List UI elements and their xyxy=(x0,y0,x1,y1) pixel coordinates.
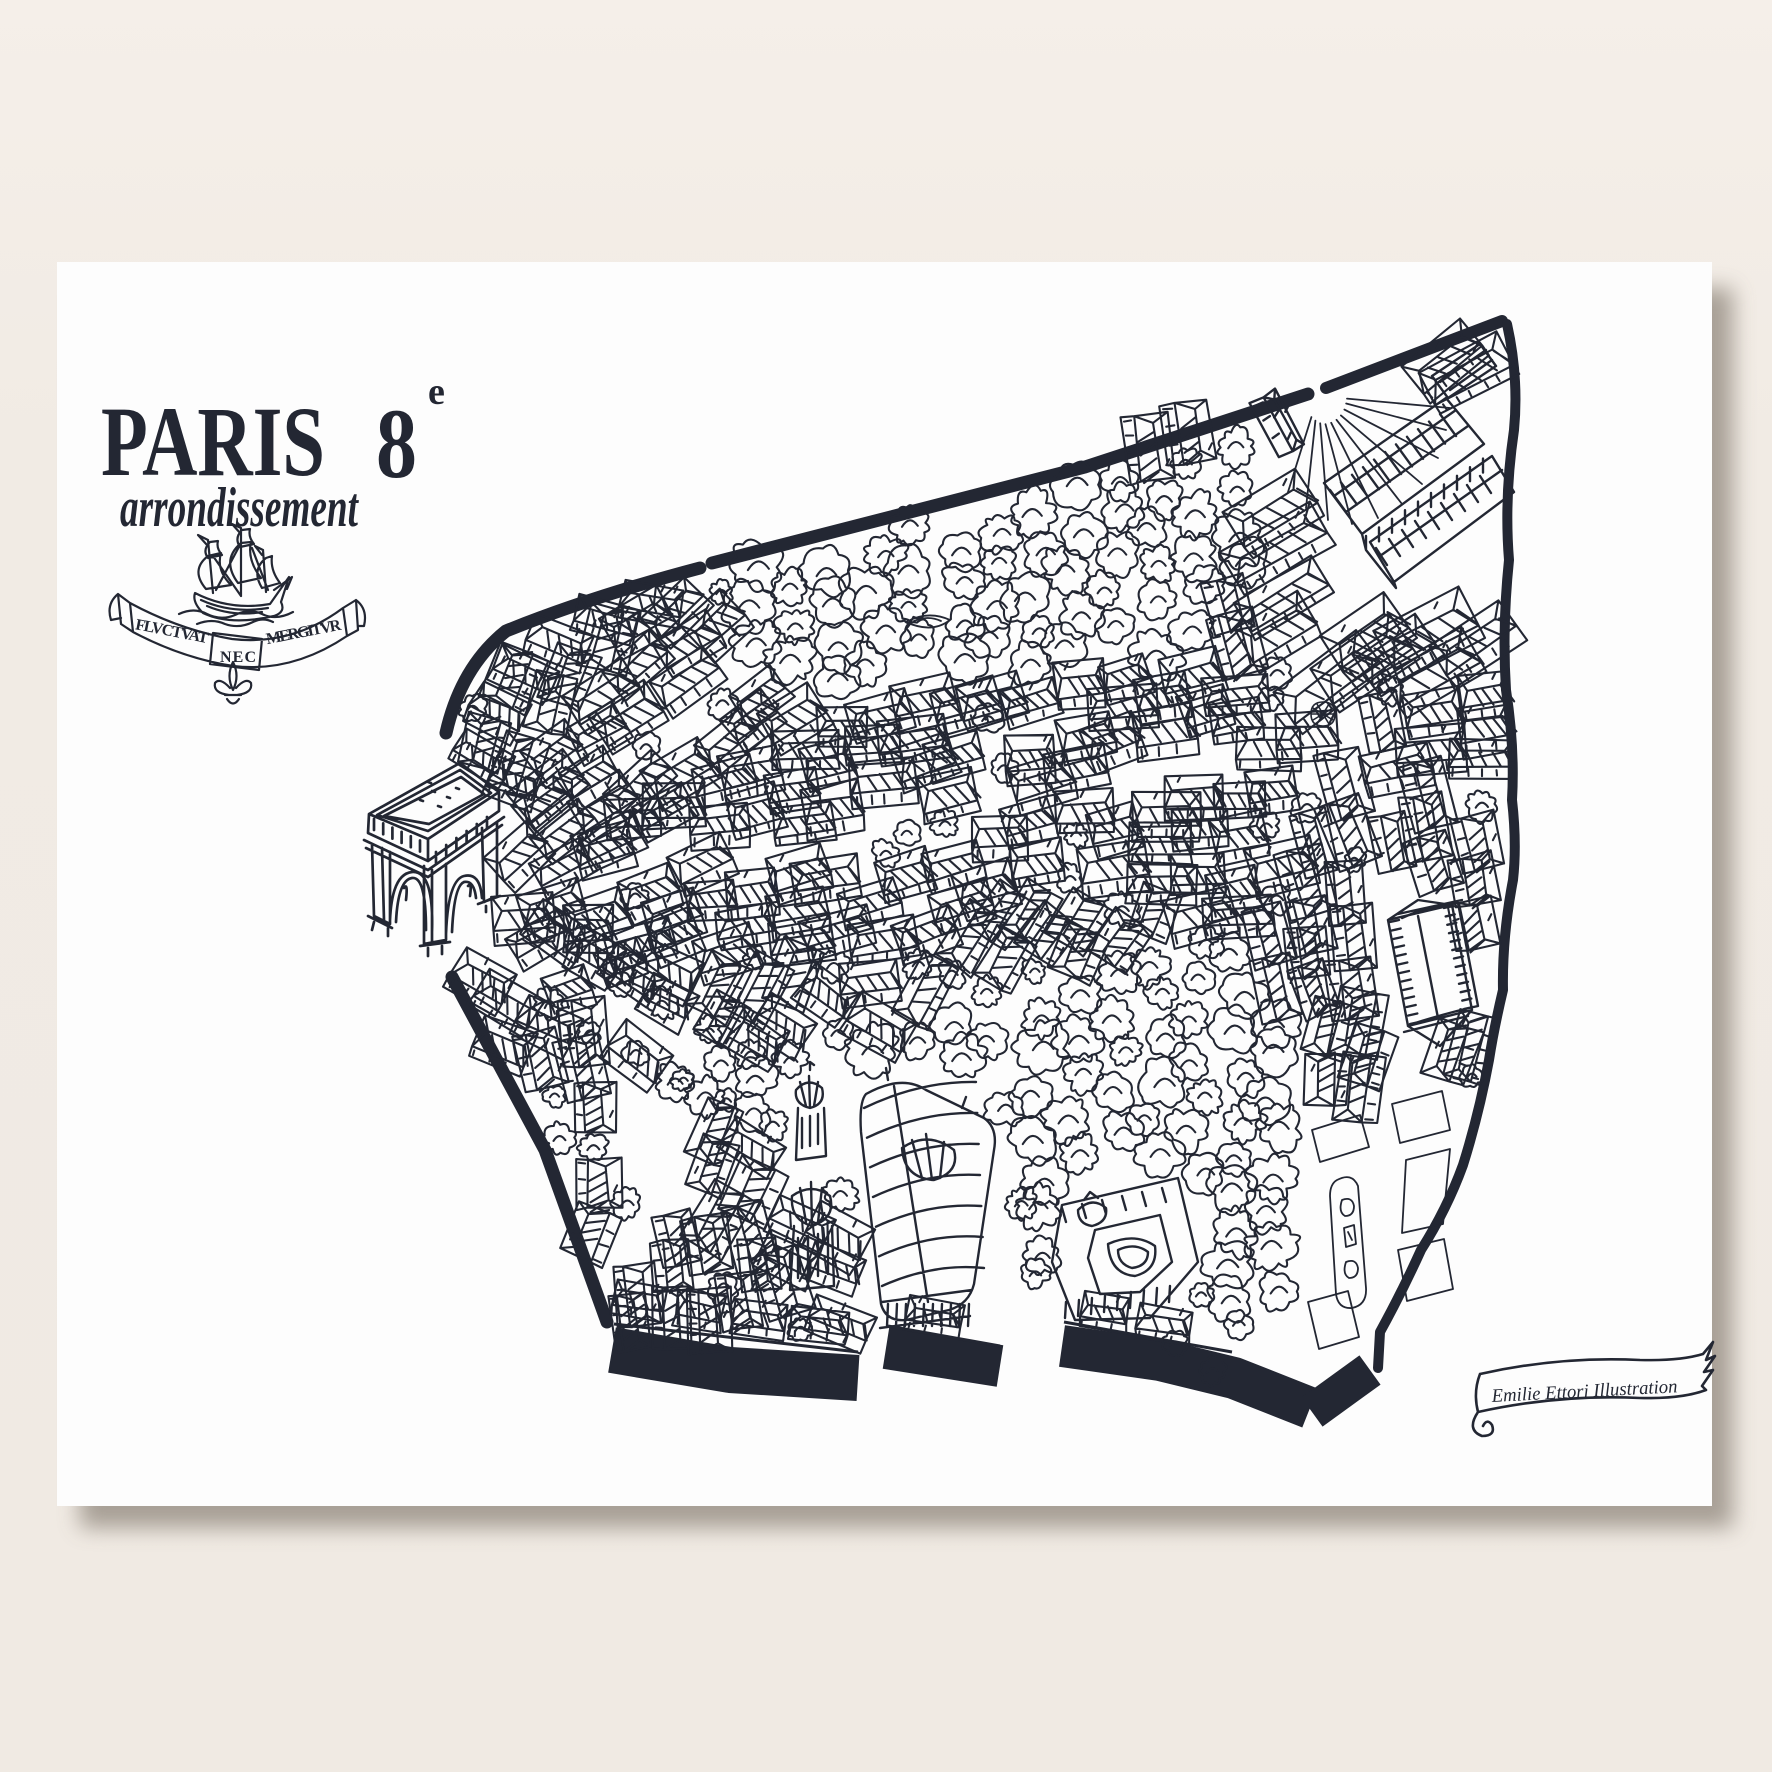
svg-text:8: 8 xyxy=(376,388,417,499)
svg-text:NEC: NEC xyxy=(220,649,256,666)
svg-text:arrondissement: arrondissement xyxy=(120,477,359,539)
svg-text:e: e xyxy=(428,371,445,413)
